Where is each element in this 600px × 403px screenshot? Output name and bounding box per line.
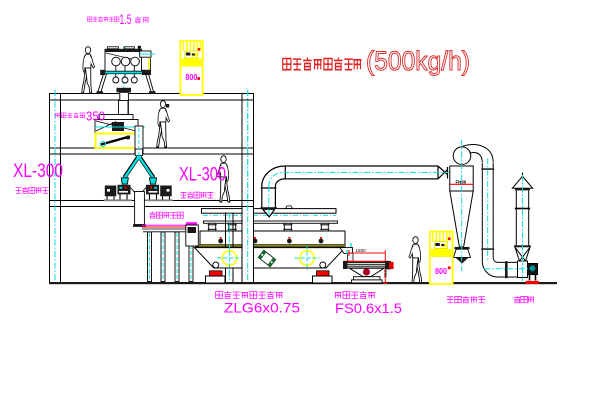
svg-text:XL-300: XL-300 [179,165,226,186]
svg-text:1.5: 1.5 [120,12,132,27]
svg-text:(500kg/h): (500kg/h) [366,46,470,76]
svg-text:XL-300: XL-300 [13,161,63,182]
svg-text:FS0.6x1.5: FS0.6x1.5 [335,300,402,316]
svg-text:800: 800 [185,72,197,82]
svg-text:580: 580 [383,269,388,277]
svg-text:350: 350 [86,109,105,124]
svg-text:ZLG6x0.75: ZLG6x0.75 [224,300,300,316]
svg-text:1500: 1500 [356,248,367,253]
svg-text:FN60: FN60 [456,179,467,184]
svg-text:800: 800 [435,266,447,276]
